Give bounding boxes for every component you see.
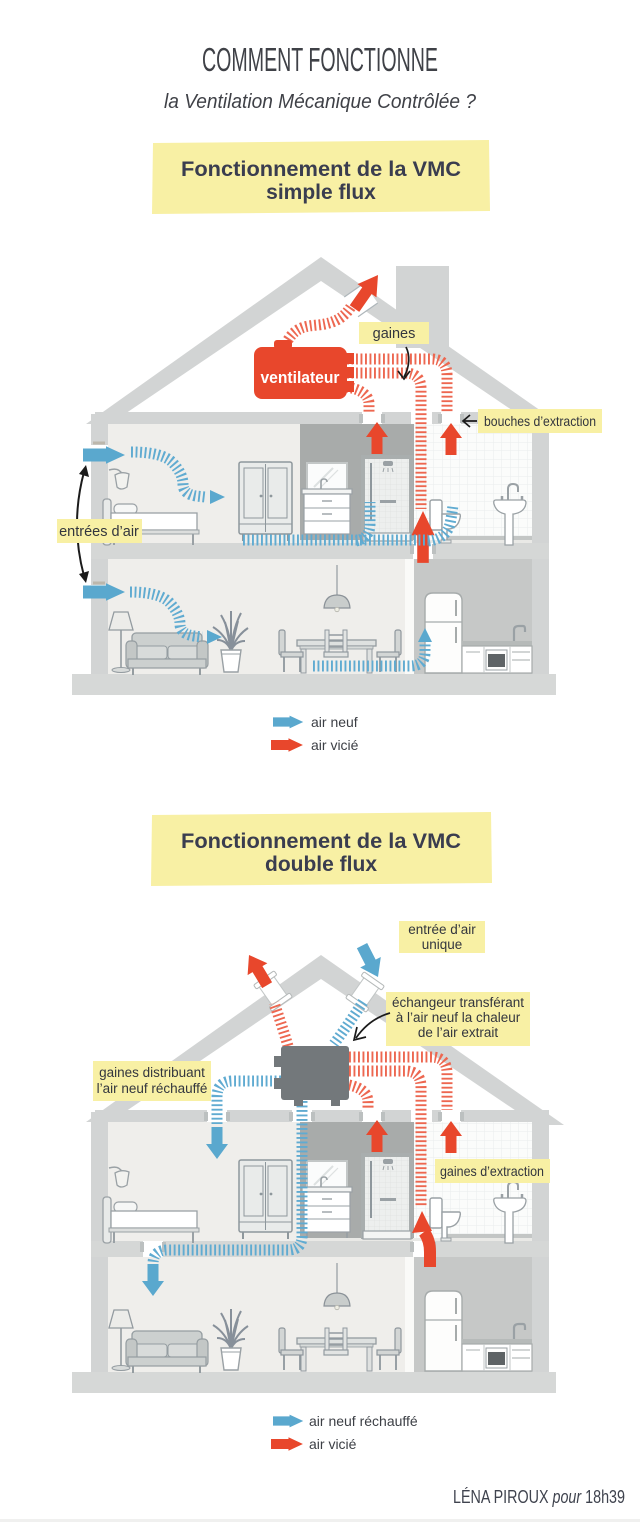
- svg-text:gaines d’extraction: gaines d’extraction: [440, 1163, 544, 1179]
- svg-text:air vicié: air vicié: [311, 737, 359, 753]
- svg-text:unique: unique: [422, 937, 463, 952]
- svg-text:double flux: double flux: [265, 853, 377, 876]
- svg-text:entrée d’air: entrée d’air: [408, 922, 476, 937]
- svg-text:gaines distribuant: gaines distribuant: [99, 1065, 205, 1080]
- svg-text:Fonctionnement de la VMC: Fonctionnement de la VMC: [181, 158, 461, 181]
- svg-text:air vicié: air vicié: [309, 1436, 357, 1452]
- svg-text:à l’air neuf la chaleur: à l’air neuf la chaleur: [396, 1010, 521, 1025]
- svg-text:de l’air extrait: de l’air extrait: [418, 1025, 499, 1040]
- svg-text:simple flux: simple flux: [266, 181, 376, 204]
- svg-text:ventilateur: ventilateur: [261, 368, 340, 387]
- svg-text:la Ventilation Mécanique Contr: la Ventilation Mécanique Contrôlée ?: [164, 91, 477, 113]
- svg-text:gaines: gaines: [373, 326, 416, 342]
- svg-text:bouches d’extraction: bouches d’extraction: [484, 413, 596, 429]
- svg-text:LÉNA PIROUX pour 18h39: LÉNA PIROUX pour 18h39: [453, 1487, 625, 1507]
- svg-text:air neuf: air neuf: [311, 714, 358, 730]
- svg-text:air neuf réchauffé: air neuf réchauffé: [309, 1413, 418, 1429]
- svg-text:l’air neuf réchauffé: l’air neuf réchauffé: [97, 1081, 208, 1096]
- svg-text:Fonctionnement de la VMC: Fonctionnement de la VMC: [181, 830, 461, 853]
- svg-text:échangeur transférant: échangeur transférant: [392, 995, 524, 1010]
- svg-text:COMMENT FONCTIONNE: COMMENT FONCTIONNE: [202, 41, 438, 78]
- svg-text:entrées d’air: entrées d’air: [59, 524, 139, 540]
